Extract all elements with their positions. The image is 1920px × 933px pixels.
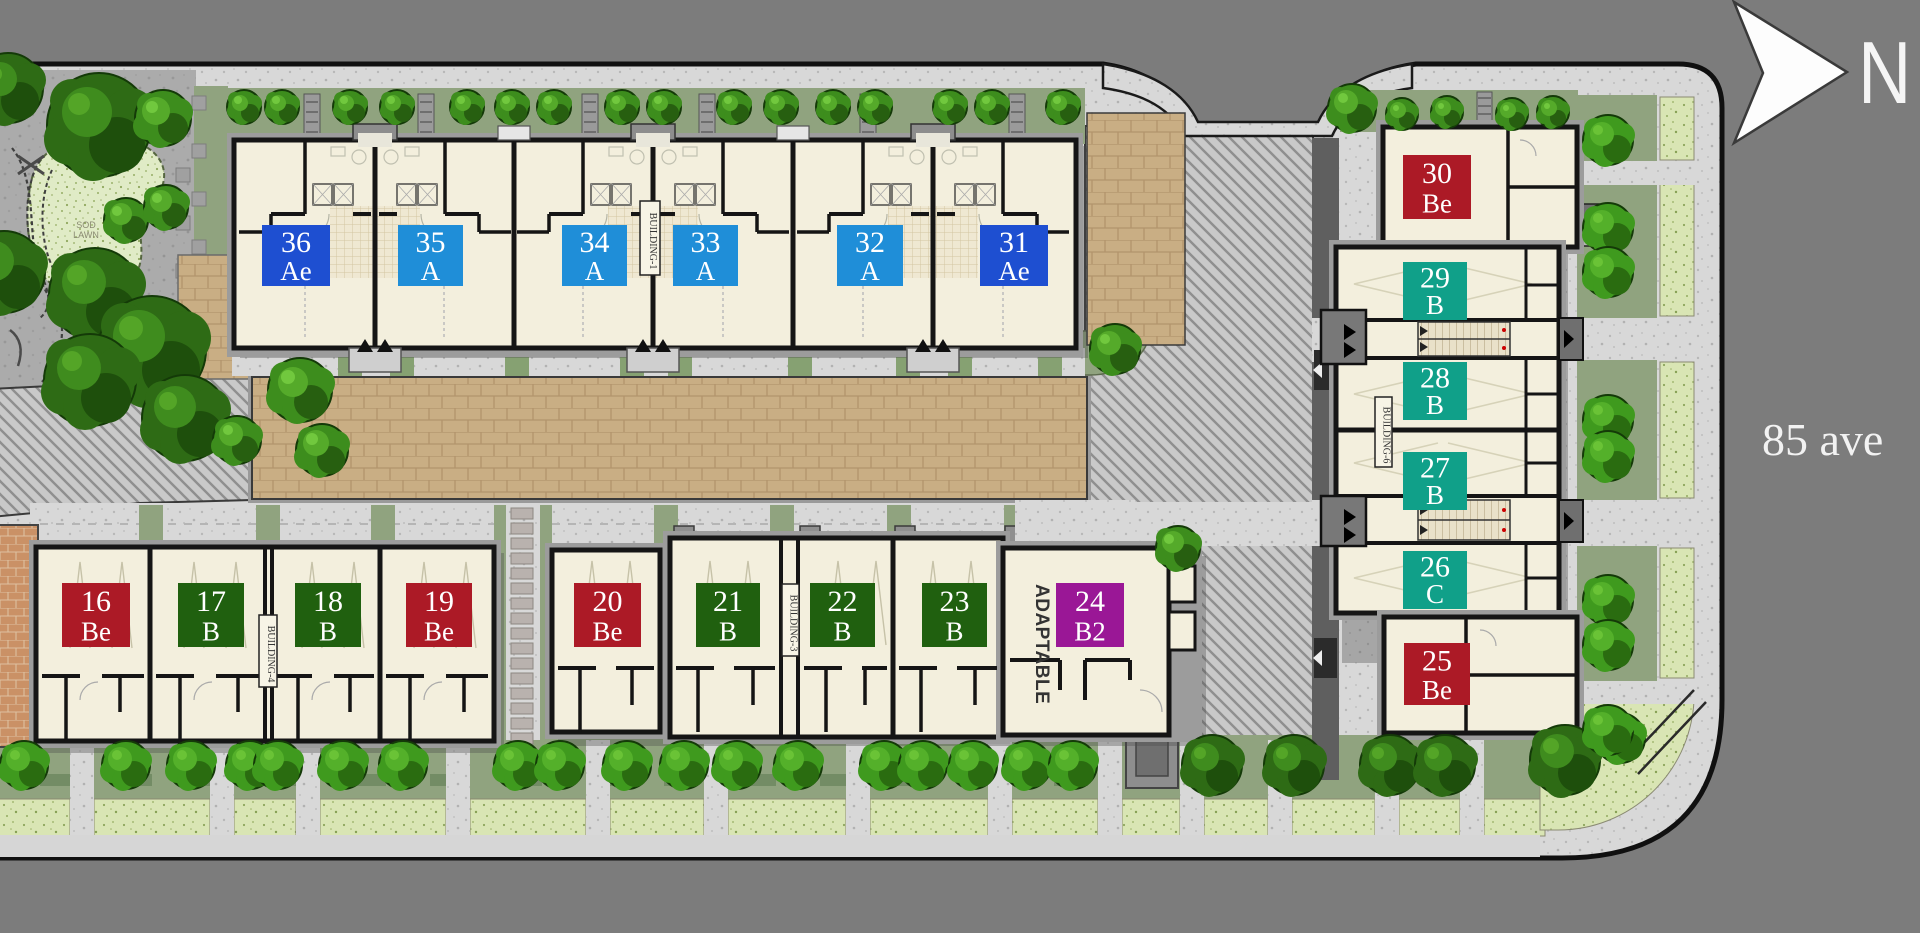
- svg-text:B: B: [202, 617, 220, 647]
- svg-text:32: 32: [855, 226, 885, 259]
- svg-text:B: B: [1426, 390, 1444, 420]
- svg-text:B: B: [719, 617, 737, 647]
- svg-text:Be: Be: [1422, 675, 1452, 705]
- svg-text:A: A: [860, 256, 880, 286]
- svg-text:A: A: [696, 256, 716, 286]
- svg-text:30: 30: [1422, 157, 1452, 190]
- svg-text:N: N: [1858, 24, 1911, 123]
- svg-text:25: 25: [1422, 644, 1452, 677]
- svg-text:B2: B2: [1074, 617, 1106, 647]
- svg-text:85 ave: 85 ave: [1762, 414, 1883, 465]
- svg-text:36: 36: [281, 226, 311, 259]
- svg-text:ADAPTABLE: ADAPTABLE: [1031, 584, 1052, 704]
- svg-text:B: B: [1426, 290, 1444, 320]
- svg-text:21: 21: [713, 585, 743, 618]
- svg-text:A: A: [421, 256, 441, 286]
- svg-text:31: 31: [999, 226, 1029, 259]
- svg-text:BUILDING-1: BUILDING-1: [647, 213, 658, 270]
- svg-text:19: 19: [424, 585, 454, 618]
- svg-text:B: B: [945, 617, 963, 647]
- svg-text:BUILDING-3: BUILDING-3: [788, 595, 799, 652]
- svg-text:35: 35: [416, 226, 446, 259]
- svg-text:16: 16: [81, 585, 111, 618]
- svg-text:C: C: [1426, 579, 1444, 609]
- svg-text:Ae: Ae: [998, 256, 1029, 286]
- svg-text:B: B: [319, 617, 337, 647]
- svg-text:SOD: SOD: [76, 220, 96, 230]
- svg-text:BUILDING-6: BUILDING-6: [1381, 407, 1392, 464]
- svg-text:B: B: [833, 617, 851, 647]
- svg-text:33: 33: [691, 226, 721, 259]
- svg-text:24: 24: [1075, 585, 1105, 618]
- svg-text:B: B: [1426, 480, 1444, 510]
- svg-text:Be: Be: [81, 617, 111, 647]
- svg-text:A: A: [585, 256, 605, 286]
- svg-text:18: 18: [313, 585, 343, 618]
- svg-text:Be: Be: [1422, 189, 1452, 219]
- svg-text:34: 34: [580, 226, 610, 259]
- svg-text:LAWN: LAWN: [73, 230, 99, 240]
- svg-text:Be: Be: [424, 617, 454, 647]
- svg-text:17: 17: [196, 585, 226, 618]
- svg-text:BUILDING-4: BUILDING-4: [265, 626, 276, 683]
- svg-text:Ae: Ae: [280, 256, 311, 286]
- svg-text:20: 20: [593, 585, 623, 618]
- svg-text:23: 23: [940, 585, 970, 618]
- svg-text:22: 22: [828, 585, 858, 618]
- svg-text:Be: Be: [593, 617, 623, 647]
